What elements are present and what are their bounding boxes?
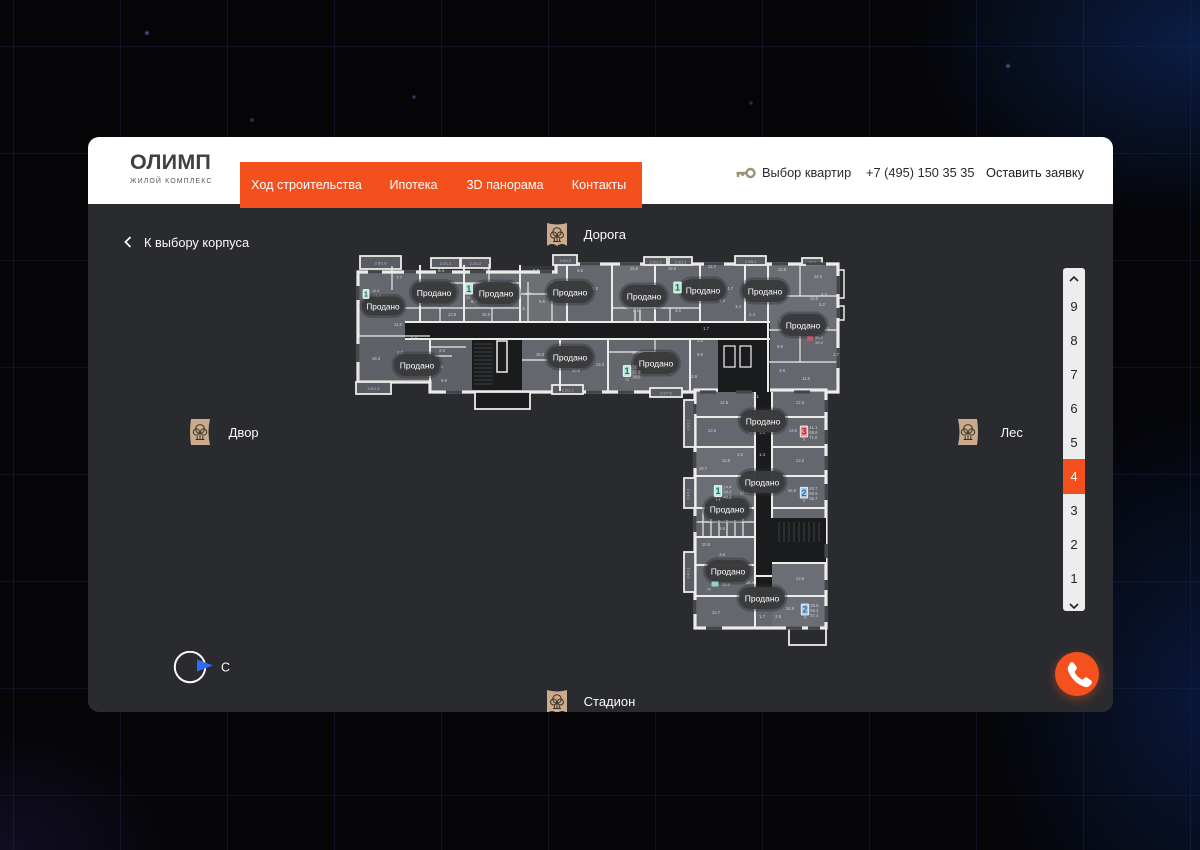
- svg-text:9.4: 9.4: [438, 268, 444, 273]
- svg-text:2.9: 2.9: [775, 614, 781, 619]
- svg-text:4.7: 4.7: [727, 286, 733, 291]
- svg-text:14.5: 14.5: [814, 274, 823, 279]
- svg-text:2.4: 2.4: [749, 312, 755, 317]
- svg-text:1.4: 1.4: [697, 338, 703, 343]
- svg-text:П: П: [803, 438, 806, 442]
- svg-text:56.7: 56.7: [809, 496, 818, 501]
- svg-text:9.2: 9.2: [411, 336, 417, 341]
- svg-text:3.0/5.4: 3.0/5.4: [745, 260, 757, 264]
- svg-text:12.3: 12.3: [796, 400, 805, 405]
- svg-text:10.0: 10.0: [810, 296, 819, 301]
- svg-text:Продано: Продано: [710, 505, 745, 515]
- svg-text:Продано: Продано: [417, 288, 452, 298]
- svg-text:Продано: Продано: [366, 302, 400, 311]
- svg-text:3.2/7.6: 3.2/7.6: [660, 392, 672, 396]
- svg-text:33.5: 33.5: [722, 583, 729, 587]
- svg-text:14.6: 14.6: [720, 400, 729, 405]
- svg-text:9.6: 9.6: [483, 266, 489, 271]
- svg-text:Продано: Продано: [748, 287, 783, 297]
- svg-text:2.5: 2.5: [737, 452, 743, 457]
- svg-text:5.2: 5.2: [819, 302, 825, 307]
- svg-text:3.6: 3.6: [719, 552, 725, 557]
- svg-text:3.6: 3.6: [719, 526, 725, 531]
- svg-text:2.4/1.2: 2.4/1.2: [687, 568, 691, 579]
- svg-text:9.6: 9.6: [577, 268, 583, 273]
- svg-text:Продано: Продано: [400, 361, 435, 371]
- svg-text:40.2: 40.2: [723, 495, 732, 500]
- svg-text:Продано: Продано: [746, 417, 781, 427]
- svg-text:С: С: [221, 661, 230, 675]
- svg-text:13.9: 13.9: [708, 428, 717, 433]
- svg-text:16.0: 16.0: [482, 312, 491, 317]
- svg-text:14.0: 14.0: [372, 289, 379, 293]
- svg-text:1: 1: [364, 292, 368, 299]
- svg-text:1: 1: [675, 283, 680, 293]
- svg-text:1.6/0.9: 1.6/0.9: [559, 259, 571, 263]
- svg-text:13.2: 13.2: [796, 458, 805, 463]
- svg-text:2.6: 2.6: [519, 306, 525, 311]
- svg-text:3: 3: [801, 427, 806, 437]
- svg-text:Продано: Продано: [745, 478, 780, 488]
- svg-text:2.9: 2.9: [691, 374, 697, 379]
- svg-text:2.6: 2.6: [439, 348, 445, 353]
- svg-text:1: 1: [715, 486, 720, 496]
- svg-text:33: 33: [466, 296, 470, 300]
- svg-text:19.6: 19.6: [668, 266, 677, 271]
- svg-text:2.2/1.1: 2.2/1.1: [562, 389, 574, 393]
- svg-text:16.9: 16.9: [786, 606, 795, 611]
- svg-text:Продано: Продано: [686, 286, 721, 296]
- svg-text:2: 2: [801, 488, 806, 498]
- svg-text:15.5: 15.5: [630, 266, 639, 271]
- svg-text:14.0: 14.0: [394, 322, 403, 327]
- svg-text:16.9: 16.9: [788, 488, 797, 493]
- svg-text:13: 13: [625, 378, 629, 382]
- svg-text:1.6: 1.6: [525, 291, 531, 296]
- svg-text:9.8: 9.8: [533, 268, 539, 273]
- svg-text:ТР: ТР: [707, 588, 712, 592]
- svg-text:16.3: 16.3: [372, 356, 381, 361]
- svg-text:2.2/1.1: 2.2/1.1: [650, 261, 662, 265]
- svg-text:2.4/1.2: 2.4/1.2: [687, 489, 691, 500]
- svg-text:Продано: Продано: [639, 359, 674, 369]
- svg-text:9.8: 9.8: [697, 352, 703, 357]
- svg-text:3.4: 3.4: [735, 304, 741, 309]
- svg-text:1.4: 1.4: [759, 452, 765, 457]
- svg-text:3.0: 3.0: [675, 308, 681, 313]
- svg-text:2.4/1.3: 2.4/1.3: [440, 262, 452, 266]
- svg-text:Продано: Продано: [553, 288, 588, 298]
- svg-text:П: П: [803, 499, 806, 503]
- svg-text:13.3: 13.3: [596, 362, 605, 367]
- svg-text:11.5: 11.5: [802, 376, 811, 381]
- svg-text:2: 2: [802, 605, 807, 615]
- svg-text:Продано: Продано: [786, 321, 821, 331]
- svg-text:14.7: 14.7: [712, 610, 721, 615]
- svg-text:60.4: 60.4: [815, 336, 822, 340]
- svg-text:9.6: 9.6: [441, 378, 447, 383]
- svg-text:9.9: 9.9: [777, 344, 783, 349]
- svg-text:3.6/1.8: 3.6/1.8: [374, 261, 387, 266]
- svg-text:7.7: 7.7: [396, 275, 402, 280]
- svg-text:12.7: 12.7: [708, 264, 717, 269]
- svg-text:5.5: 5.5: [539, 299, 545, 304]
- svg-text:10.8: 10.8: [702, 542, 711, 547]
- svg-text:1: 1: [624, 366, 629, 376]
- svg-text:3.9: 3.9: [779, 368, 785, 373]
- svg-text:2.3/1.1: 2.3/1.1: [675, 261, 687, 265]
- svg-text:59.8: 59.8: [815, 341, 822, 345]
- svg-text:13.6: 13.6: [796, 576, 805, 581]
- svg-text:4.5: 4.5: [821, 292, 827, 297]
- svg-text:57.4: 57.4: [810, 613, 819, 618]
- svg-text:1.7: 1.7: [759, 614, 765, 619]
- svg-text:3.6/1.8: 3.6/1.8: [367, 386, 380, 391]
- svg-text:1: 1: [466, 284, 471, 294]
- svg-text:1-к: 1-к: [716, 498, 721, 502]
- svg-text:2.1: 2.1: [753, 394, 759, 399]
- svg-text:2.4/1.2: 2.4/1.2: [470, 262, 482, 266]
- svg-text:Продано: Продано: [479, 289, 514, 299]
- svg-text:71.0: 71.0: [809, 435, 818, 440]
- svg-text:10.7: 10.7: [699, 466, 708, 471]
- svg-text:П: П: [804, 616, 807, 620]
- svg-text:Продано: Продано: [627, 292, 662, 302]
- svg-text:13.9: 13.9: [778, 267, 787, 272]
- svg-text:2.3/1.1: 2.3/1.1: [687, 420, 691, 431]
- svg-text:18.3: 18.3: [536, 352, 545, 357]
- svg-text:13.8: 13.8: [722, 458, 731, 463]
- svg-text:38.6: 38.6: [632, 375, 641, 380]
- svg-text:1.7: 1.7: [703, 326, 709, 331]
- svg-text:1.7: 1.7: [833, 352, 839, 357]
- svg-text:Продано: Продано: [711, 567, 746, 577]
- svg-text:Продано: Продано: [553, 353, 588, 363]
- svg-text:13.9: 13.9: [448, 312, 457, 317]
- svg-text:Продано: Продано: [745, 594, 780, 604]
- svg-text:13.6: 13.6: [789, 428, 798, 433]
